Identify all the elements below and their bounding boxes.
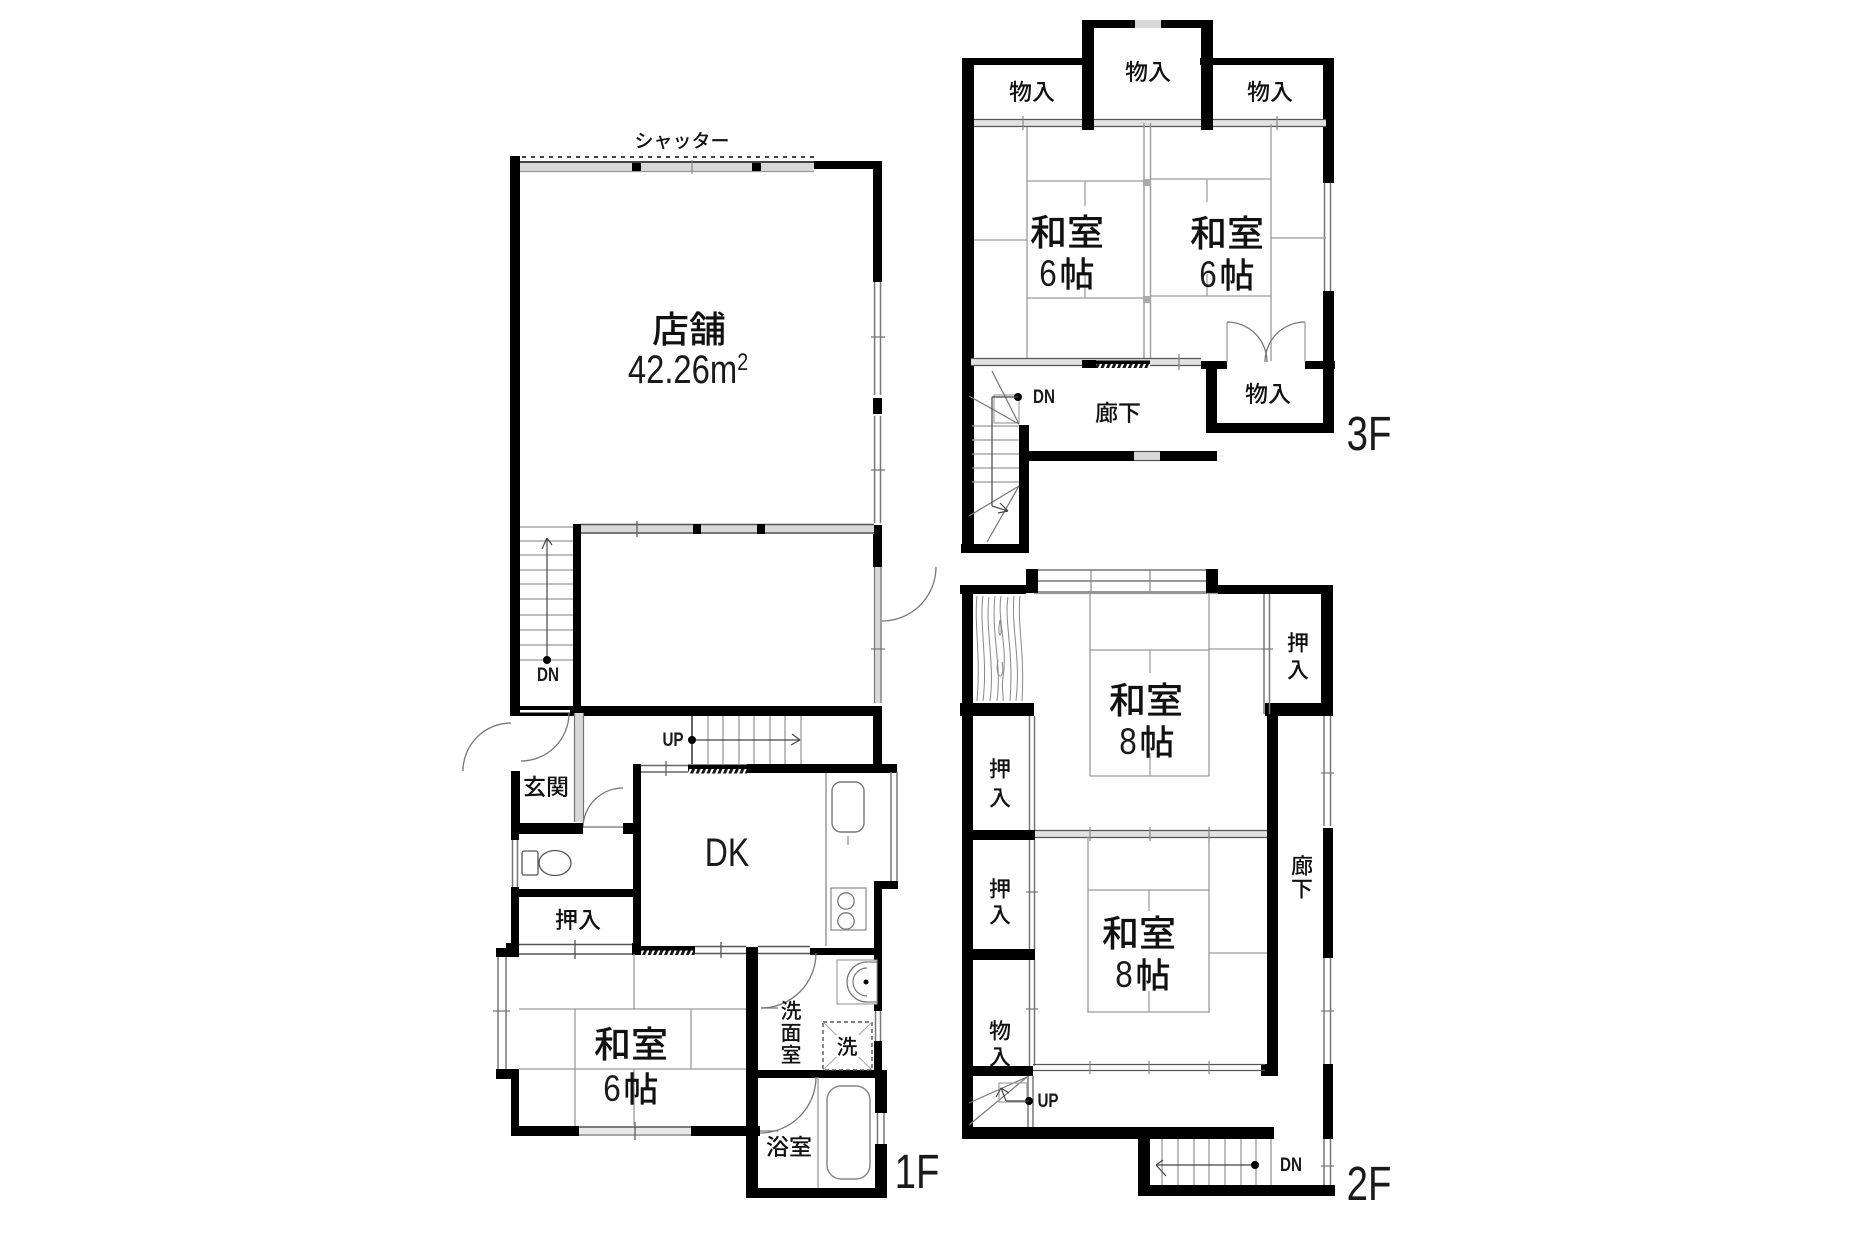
svg-text:DN: DN: [1280, 1153, 1302, 1175]
svg-text:42.26m2: 42.26m2: [628, 347, 748, 392]
svg-text:DN: DN: [1033, 385, 1055, 407]
svg-text:3F: 3F: [1347, 408, 1392, 461]
svg-text:8: 8: [1119, 722, 1136, 763]
svg-text:2F: 2F: [1347, 1158, 1392, 1211]
svg-text:DK: DK: [705, 830, 749, 875]
svg-text:8: 8: [1115, 955, 1132, 996]
svg-text:DN: DN: [537, 663, 559, 685]
svg-text:6: 6: [603, 1069, 620, 1110]
svg-text:UP: UP: [1037, 1089, 1058, 1111]
svg-text:6: 6: [1039, 254, 1056, 295]
svg-text:6: 6: [1199, 255, 1216, 296]
svg-text:1F: 1F: [895, 1146, 940, 1199]
svg-text:UP: UP: [662, 728, 683, 750]
